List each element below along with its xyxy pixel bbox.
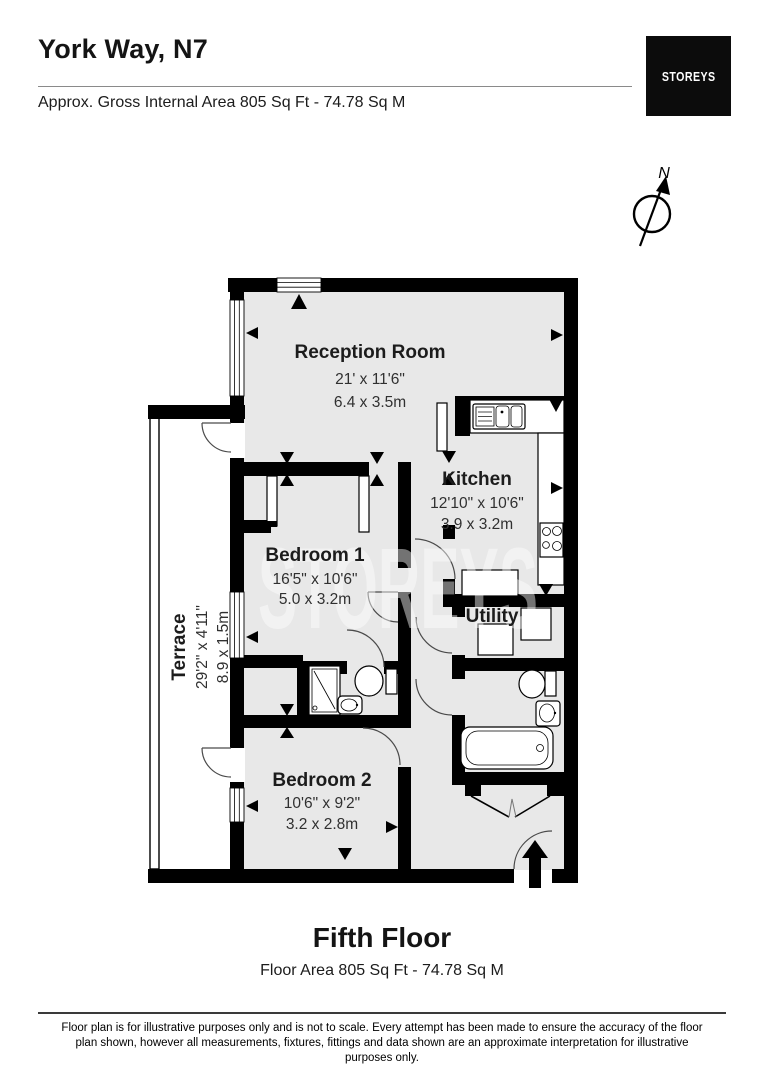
reception-metric: 6.4 x 3.5m [334, 394, 406, 411]
disclaimer-line1: Floor plan is for illustrative purposes … [32, 1021, 732, 1036]
window-reception-left [230, 300, 244, 396]
terrace-metric: 8.9 x 1.5m [215, 611, 232, 683]
kitchen-imperial: 12'10" x 10'6" [430, 495, 524, 512]
wardrobe-panel [267, 476, 277, 526]
utility-label: Utility [466, 606, 519, 627]
bath-icon [461, 727, 553, 769]
bedroom2-label: Bedroom 2 [272, 770, 371, 791]
compass-north-label: N [658, 165, 670, 182]
corridor-door-leaf [437, 403, 447, 451]
disclaimer-line2: plan shown, however all measurements, fi… [32, 1036, 732, 1051]
bathroom-toilet-icon [519, 670, 556, 698]
floor-plan: N [0, 0, 764, 1080]
floor-title: Fifth Floor [0, 922, 764, 954]
bathroom-basin-icon [536, 701, 560, 726]
terrace-label: Terrace [169, 613, 190, 680]
floor-subtitle: Floor Area 805 Sq Ft - 74.78 Sq M [0, 962, 764, 980]
bedroom1-door-leaf [359, 476, 369, 532]
shower-icon [309, 666, 340, 715]
ensuite-toilet-icon [355, 666, 397, 696]
window-bedroom1-left [230, 592, 244, 658]
hob-icon [540, 523, 563, 557]
reception-label: Reception Room [295, 342, 446, 363]
compass-icon [634, 176, 670, 246]
reception-imperial: 21' x 11'6" [335, 371, 405, 388]
disclaimer-line3: purposes only. [32, 1051, 732, 1066]
footer-divider [38, 1012, 726, 1014]
kitchen-sink-icon [473, 404, 525, 429]
terrace-imperial: 29'2" x 4'11" [194, 605, 211, 689]
kitchen-metric: 3.9 x 3.2m [441, 516, 513, 533]
disclaimer: Floor plan is for illustrative purposes … [32, 1021, 732, 1066]
ensuite-basin-icon [338, 696, 362, 714]
bedroom2-metric: 3.2 x 2.8m [286, 816, 358, 833]
bedroom1-imperial: 16'5" x 10'6" [272, 571, 357, 588]
kitchen-label: Kitchen [442, 469, 512, 490]
bedroom1-label: Bedroom 1 [265, 545, 365, 566]
floorplan-page: { "header": { "title": "York Way, N7", "… [0, 0, 764, 1080]
kitchen-counter-right [538, 433, 564, 585]
bedroom1-metric: 5.0 x 3.2m [279, 591, 351, 608]
bedroom2-imperial: 10'6" x 9'2" [284, 795, 360, 812]
window-top [277, 278, 321, 292]
terrace-railing [150, 417, 159, 869]
window-bedroom2-left [230, 788, 244, 822]
